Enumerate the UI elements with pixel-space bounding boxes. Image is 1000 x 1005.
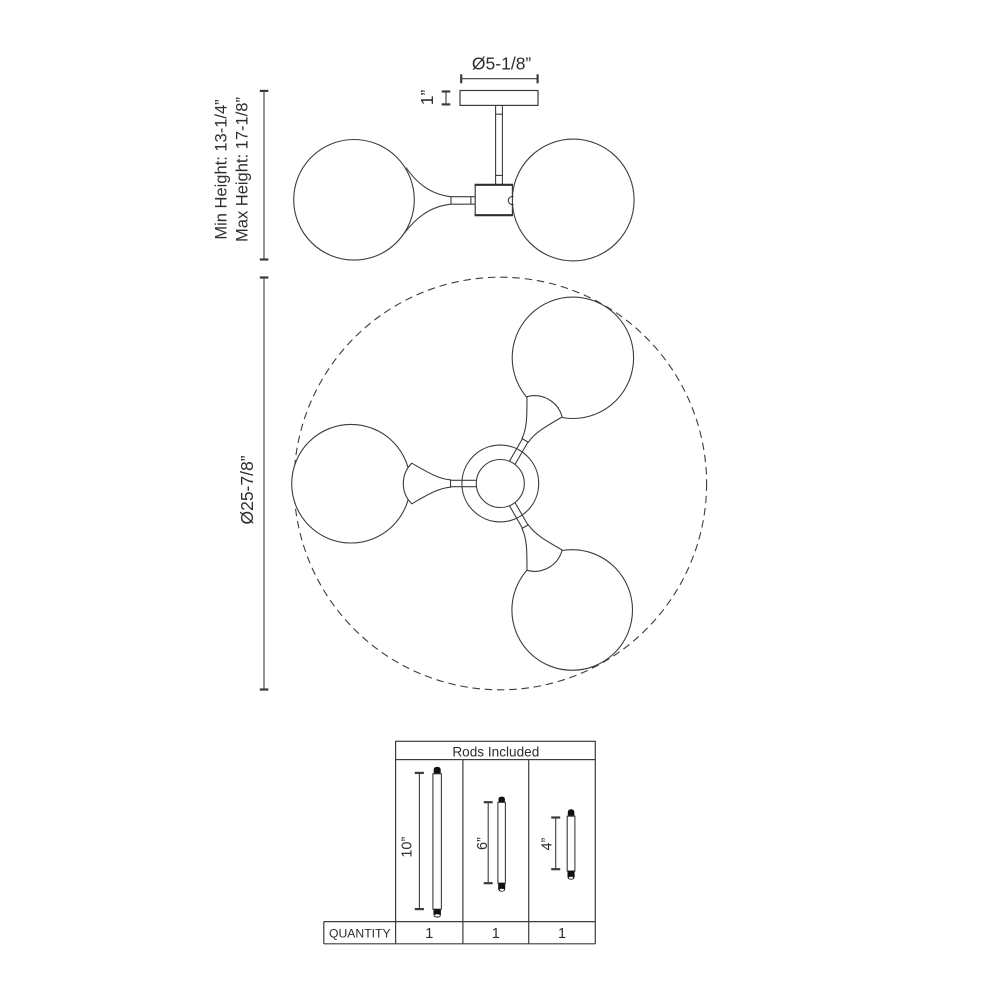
- svg-text:Max Height: 17-1/8”: Max Height: 17-1/8”: [234, 97, 252, 242]
- svg-text:Ø25-7/8”: Ø25-7/8”: [237, 455, 257, 524]
- svg-text:1: 1: [492, 926, 500, 942]
- svg-text:Min Height: 13-1/4”: Min Height: 13-1/4”: [213, 99, 231, 239]
- svg-text:10”: 10”: [400, 837, 416, 858]
- svg-text:Rods Included: Rods Included: [452, 745, 539, 760]
- svg-text:QUANTITY: QUANTITY: [329, 926, 391, 940]
- svg-text:1: 1: [425, 926, 433, 942]
- svg-text:1: 1: [558, 926, 566, 942]
- svg-text:1”: 1”: [417, 90, 437, 106]
- svg-text:4”: 4”: [539, 837, 555, 850]
- svg-text:6”: 6”: [475, 837, 491, 850]
- svg-text:Ø5-1/8”: Ø5-1/8”: [472, 54, 531, 74]
